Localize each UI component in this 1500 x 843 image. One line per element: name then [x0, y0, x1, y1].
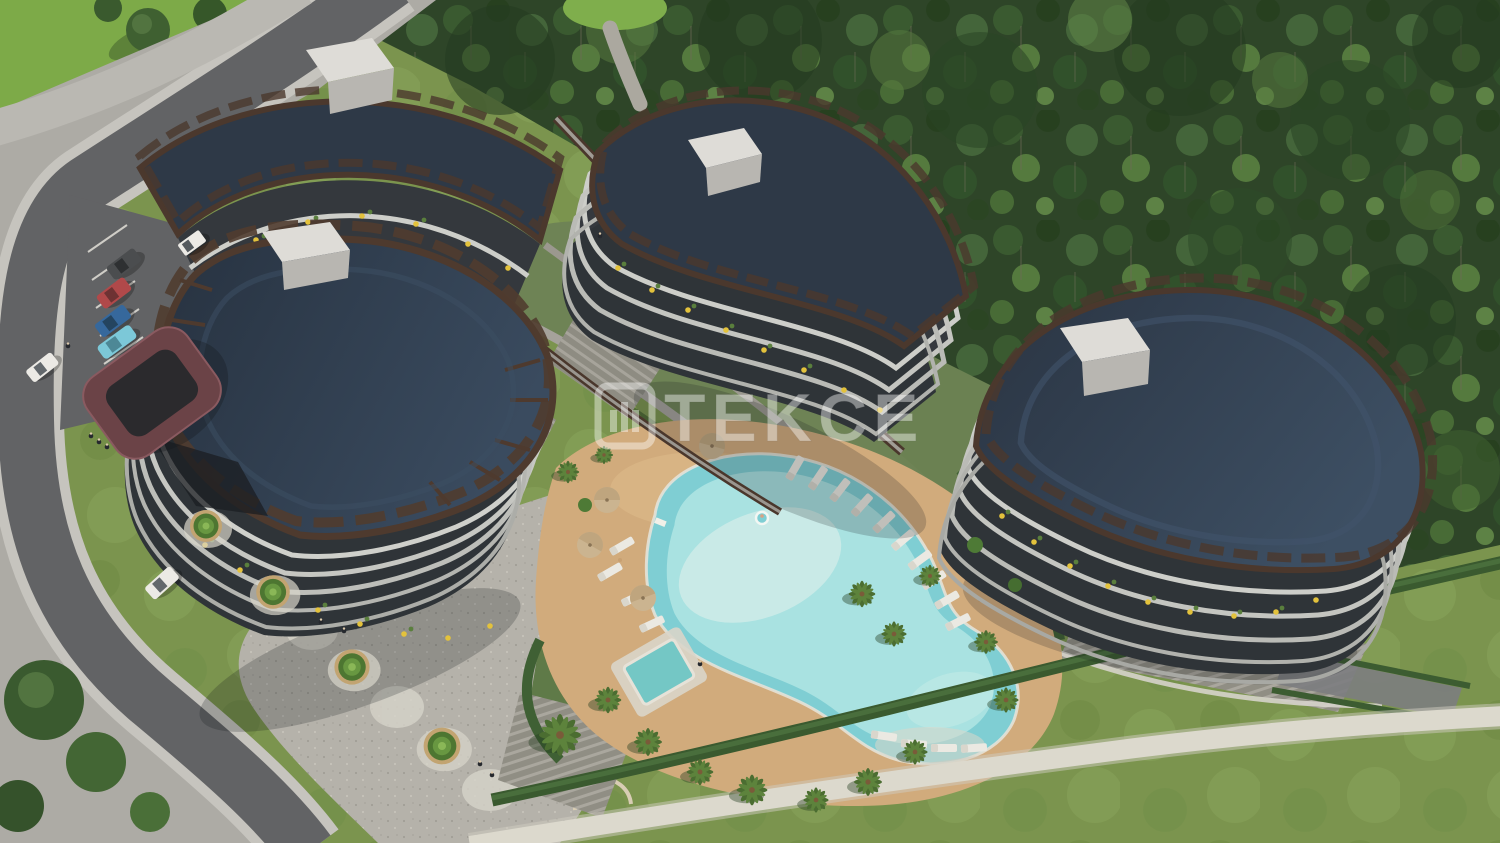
watermark-text: TEKCE: [664, 380, 924, 456]
render-canvas: TEKCE: [0, 0, 1500, 843]
swim-ring: [756, 512, 768, 524]
swimmer: [760, 514, 764, 518]
aerial-render: TEKCE: [0, 0, 1500, 843]
